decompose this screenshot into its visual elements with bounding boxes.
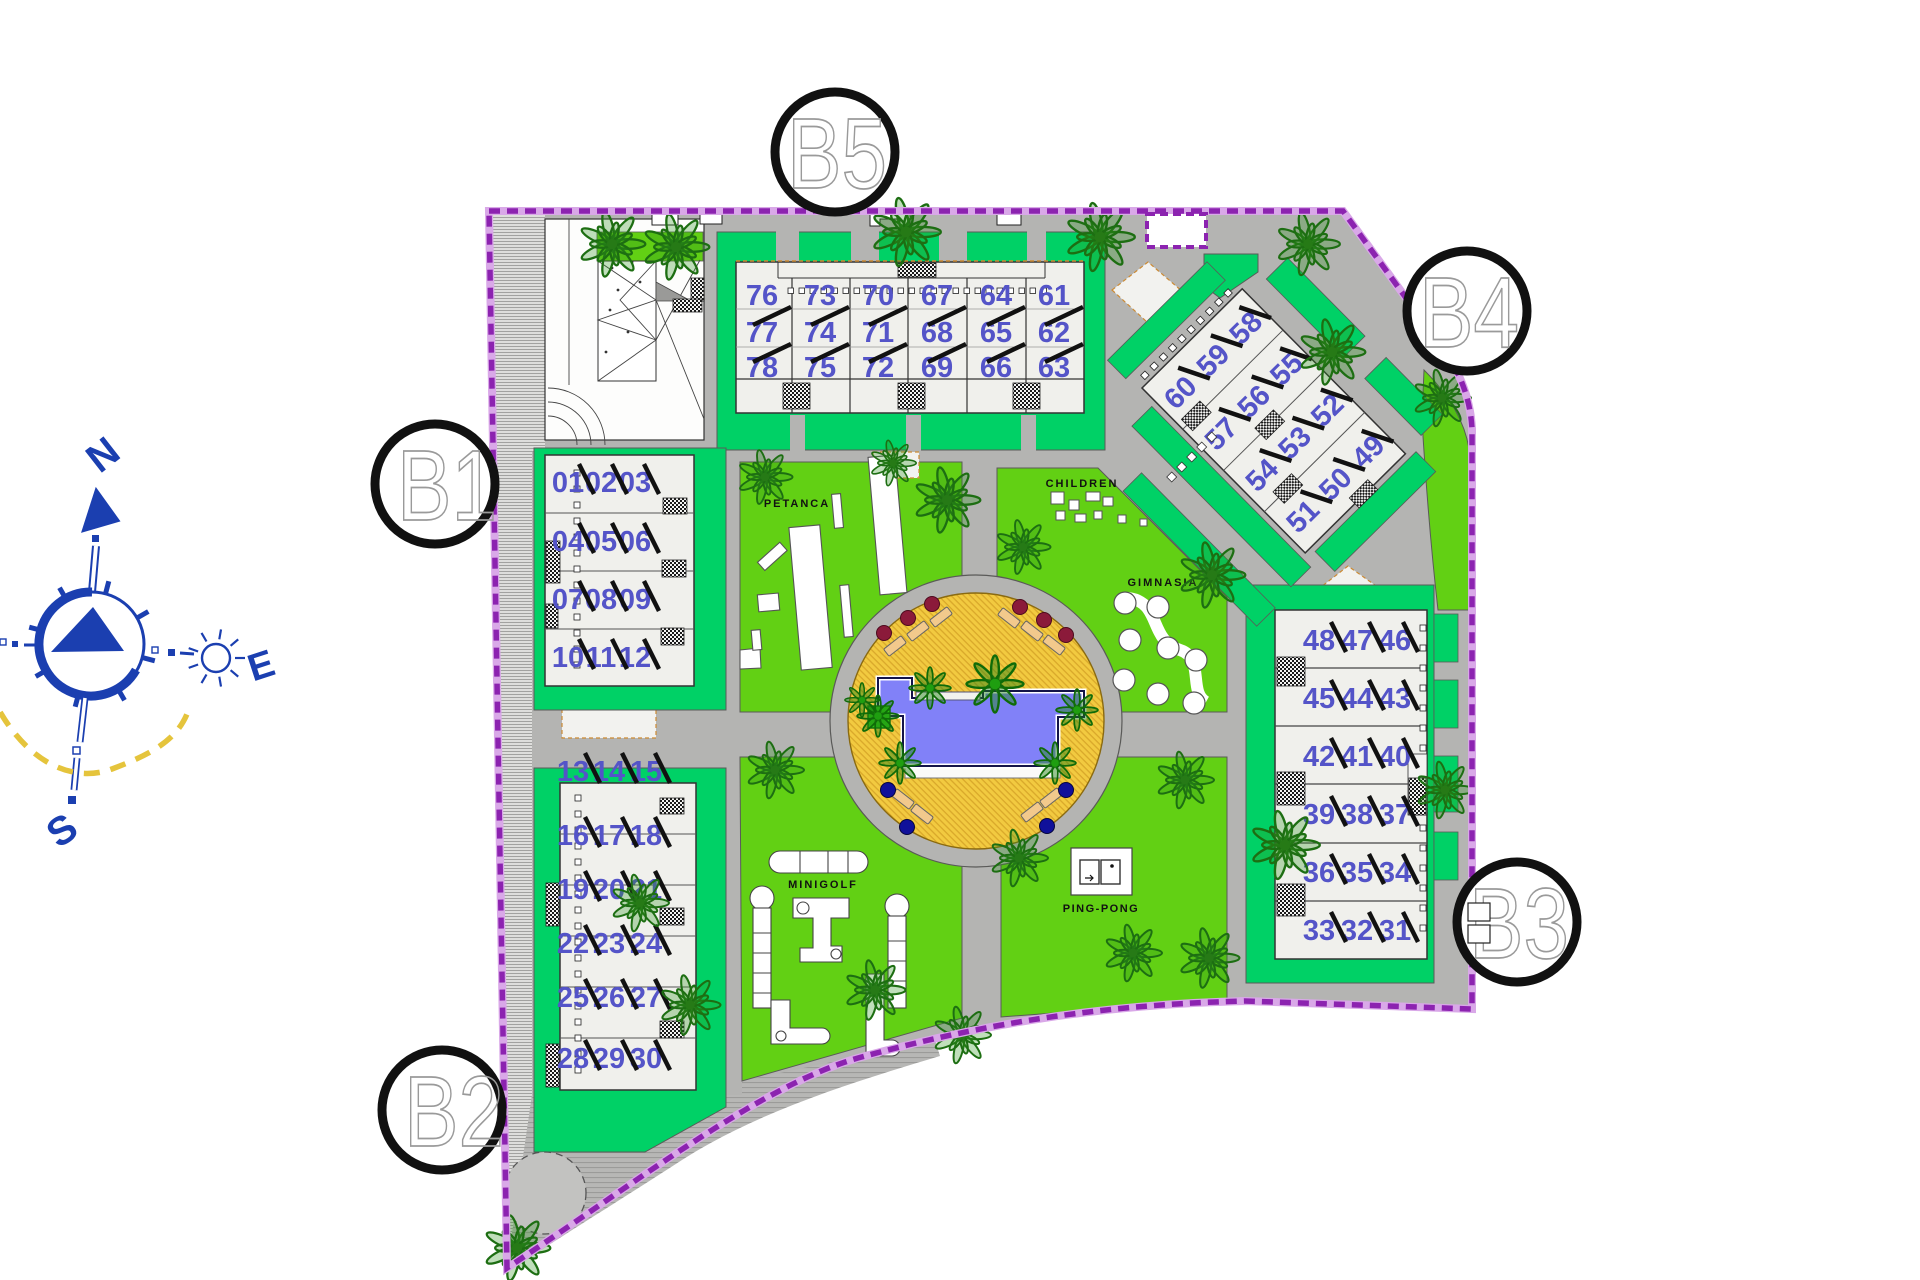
svg-text:61: 61	[1038, 280, 1070, 312]
svg-text:67: 67	[921, 280, 953, 312]
svg-text:38: 38	[1341, 799, 1373, 831]
svg-text:70: 70	[862, 280, 894, 312]
svg-text:73: 73	[804, 280, 836, 312]
svg-text:MINIGOLF: MINIGOLF	[788, 879, 858, 891]
svg-text:64: 64	[980, 280, 1012, 312]
svg-text:41: 41	[1341, 741, 1373, 773]
svg-text:01: 01	[552, 467, 584, 499]
svg-text:B5: B5	[787, 98, 887, 210]
svg-text:25: 25	[557, 982, 589, 1014]
svg-text:45: 45	[1303, 683, 1335, 715]
svg-text:13: 13	[557, 756, 589, 788]
svg-text:22: 22	[557, 928, 589, 960]
svg-text:76: 76	[746, 280, 778, 312]
svg-text:B3: B3	[1469, 868, 1569, 980]
svg-text:CHILDREN: CHILDREN	[1046, 478, 1119, 490]
svg-text:PETANCA: PETANCA	[764, 498, 830, 510]
svg-text:42: 42	[1303, 741, 1335, 773]
svg-text:44: 44	[1341, 683, 1373, 715]
svg-text:19: 19	[557, 874, 589, 906]
svg-text:B2: B2	[404, 1056, 504, 1168]
svg-text:10: 10	[552, 642, 584, 674]
svg-text:36: 36	[1303, 857, 1335, 889]
svg-text:32: 32	[1341, 915, 1373, 947]
svg-text:39: 39	[1303, 799, 1335, 831]
svg-text:04: 04	[552, 526, 584, 558]
svg-text:48: 48	[1303, 625, 1335, 657]
svg-text:PING-PONG: PING-PONG	[1063, 903, 1139, 915]
svg-text:47: 47	[1341, 625, 1373, 657]
svg-text:B4: B4	[1419, 257, 1519, 369]
svg-text:33: 33	[1303, 915, 1335, 947]
svg-text:B1: B1	[397, 430, 497, 542]
svg-text:07: 07	[552, 584, 584, 616]
svg-text:16: 16	[557, 820, 589, 852]
svg-text:28: 28	[557, 1043, 589, 1075]
svg-text:35: 35	[1341, 857, 1373, 889]
